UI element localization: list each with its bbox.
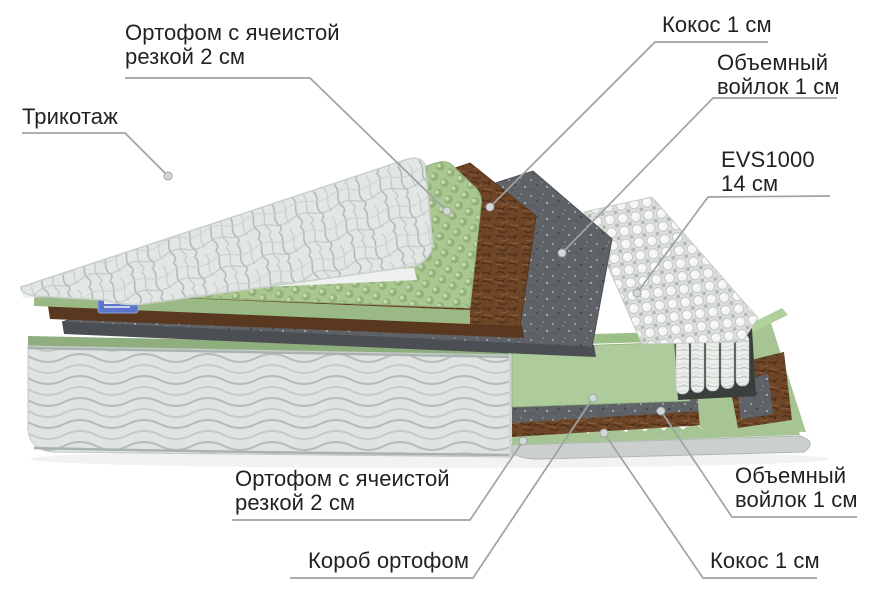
label-kokos-bottom: Кокос 1 см xyxy=(710,549,820,573)
label-line: Объемный xyxy=(735,464,858,488)
label-line: резкой 2 см xyxy=(125,45,340,69)
coil-column xyxy=(676,340,689,394)
base-side-face xyxy=(28,346,512,457)
label-line: Объемный xyxy=(717,51,840,75)
label-line: Кокос 1 см xyxy=(662,13,772,37)
label-voylok-bottom: Объемный войлок 1 см xyxy=(735,464,858,512)
label-line: EVS1000 xyxy=(721,148,815,172)
mattress-diagram: Ортофом с ячеистой резкой 2 см Трикотаж … xyxy=(0,0,874,599)
mattress-base xyxy=(28,336,513,457)
dot-trikotazh xyxy=(164,172,172,180)
coil-column xyxy=(721,336,734,389)
dot-korob xyxy=(589,394,597,402)
label-line: Кокос 1 см xyxy=(710,549,820,573)
spring-block-top xyxy=(584,197,758,344)
label-kokos-top: Кокос 1 см xyxy=(662,13,772,37)
dot-kokos-top xyxy=(486,203,494,211)
dot-voylok-top xyxy=(558,249,566,257)
label-line: Трикотаж xyxy=(22,105,118,129)
label-line: 14 см xyxy=(721,172,815,196)
label-trikotazh: Трикотаж xyxy=(22,105,118,129)
dot-voylok-bottom xyxy=(657,407,665,415)
label-line: резкой 2 см xyxy=(235,491,450,515)
label-line: Ортофом с ячеистой xyxy=(235,467,450,491)
label-korob: Короб ортофом xyxy=(308,549,469,573)
label-line: войлок 1 см xyxy=(735,488,858,512)
coil-column xyxy=(706,337,719,391)
dot-ortofoam-top xyxy=(443,207,451,215)
spring-block-face xyxy=(584,197,758,344)
label-ortofoam-bottom: Ортофом с ячеистой резкой 2 см xyxy=(235,467,450,515)
dot-ortofoam-bottom xyxy=(519,437,527,445)
label-ortofoam-top: Ортофом с ячеистой резкой 2 см xyxy=(125,21,340,69)
label-line: войлок 1 см xyxy=(717,75,840,99)
label-voylok-top: Объемный войлок 1 см xyxy=(717,51,840,99)
dot-evs xyxy=(633,289,641,297)
label-line: Ортофом с ячеистой xyxy=(125,21,340,45)
coil-column xyxy=(691,339,704,393)
label-line: Короб ортофом xyxy=(308,549,469,573)
dot-kokos-bottom xyxy=(600,429,608,437)
label-evs1000: EVS1000 14 см xyxy=(721,148,815,196)
leader-trikotazh xyxy=(22,133,168,176)
